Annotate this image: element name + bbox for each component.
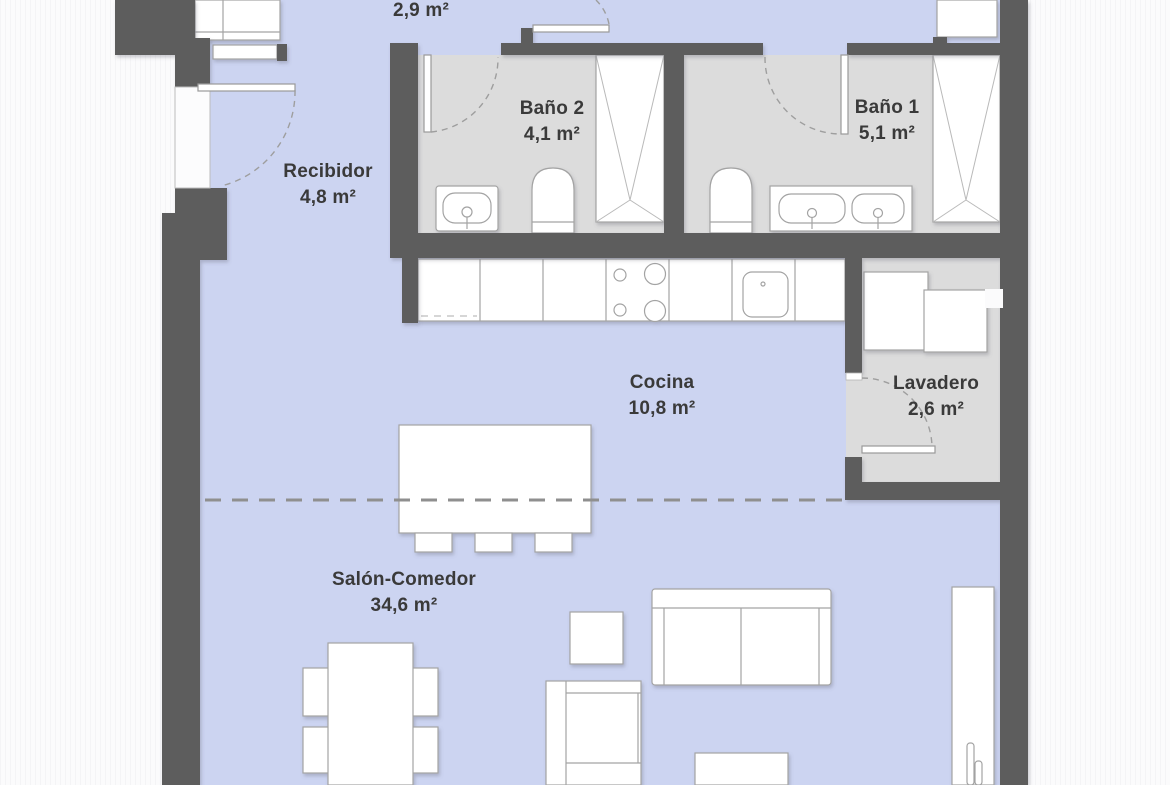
bathroom2-door-leaf	[424, 55, 431, 132]
bathroom2-toilet	[532, 168, 574, 233]
window-strip	[952, 587, 994, 785]
wall	[390, 43, 418, 258]
stool	[535, 533, 572, 552]
room-label-lavadero: Lavadero 2,6 m²	[893, 371, 979, 423]
room-label-storage: 2,9 m²	[393, 0, 449, 24]
bathroom2-sink	[436, 186, 498, 231]
room-name: Cocina	[629, 370, 696, 396]
laundry-door-jamb	[846, 373, 862, 380]
wall	[501, 43, 763, 55]
room-name: Lavadero	[893, 371, 979, 397]
dryer	[924, 290, 987, 352]
room-area: 5,1 m²	[855, 121, 920, 147]
wall	[175, 50, 210, 87]
wall	[933, 37, 947, 44]
room-label-recibidor: Recibidor 4,8 m²	[283, 159, 372, 211]
washer	[864, 272, 928, 350]
laundry-door-leaf	[862, 446, 935, 453]
bathroom1-vanity	[770, 186, 912, 231]
room-area: 10,8 m²	[629, 396, 696, 422]
chair	[303, 727, 330, 773]
room-name: Baño 1	[855, 95, 920, 121]
room-area: 4,8 m²	[283, 185, 372, 211]
bathroom1-shower	[933, 55, 1000, 222]
room-name: Salón-Comedor	[332, 567, 476, 593]
laundry-door-opening	[846, 373, 862, 457]
front-door-leaf	[198, 84, 295, 91]
wall	[521, 28, 533, 43]
room-area: 2,9 m²	[393, 0, 449, 24]
front-door-opening	[175, 87, 210, 188]
wall	[162, 213, 200, 785]
room-area: 34,6 m²	[332, 593, 476, 619]
wall	[115, 0, 195, 55]
room-area: 4,1 m²	[520, 122, 585, 148]
chair	[411, 727, 438, 773]
stool	[475, 533, 512, 552]
stool	[415, 533, 452, 552]
wall	[845, 256, 862, 373]
hall-cabinet	[937, 0, 997, 37]
wall	[277, 44, 287, 61]
bathroom1-door-leaf	[841, 55, 848, 134]
side-table	[570, 612, 623, 664]
wall	[390, 233, 1028, 258]
armchair	[546, 681, 641, 785]
wall	[664, 43, 684, 258]
wall	[1000, 0, 1028, 785]
storage-door-leaf	[533, 25, 609, 32]
wall	[845, 457, 862, 484]
chair	[303, 668, 330, 716]
chair	[411, 668, 438, 716]
room-name: Baño 2	[520, 96, 585, 122]
room-label-salon-comedor: Salón-Comedor 34,6 m²	[332, 567, 476, 619]
coffee-table	[695, 753, 788, 785]
dining-table	[328, 643, 413, 785]
sofa	[652, 589, 831, 685]
room-label-cocina: Cocina 10,8 m²	[629, 370, 696, 422]
wall	[402, 258, 418, 323]
wall-notch	[985, 289, 1003, 308]
kitchen-island	[399, 425, 591, 552]
bathroom2-shower	[596, 55, 664, 222]
kitchen-sink	[743, 272, 788, 317]
bathroom1-toilet	[710, 168, 752, 233]
floor-plan: 2,9 m² Recibidor 4,8 m² Baño 2 4,1 m² Ba…	[0, 0, 1170, 785]
room-label-bano1: Baño 1 5,1 m²	[855, 95, 920, 147]
room-area: 2,6 m²	[893, 397, 979, 423]
room-label-bano2: Baño 2 4,1 m²	[520, 96, 585, 148]
floor-plan-drawing	[0, 0, 1170, 785]
room-name: Recibidor	[283, 159, 372, 185]
